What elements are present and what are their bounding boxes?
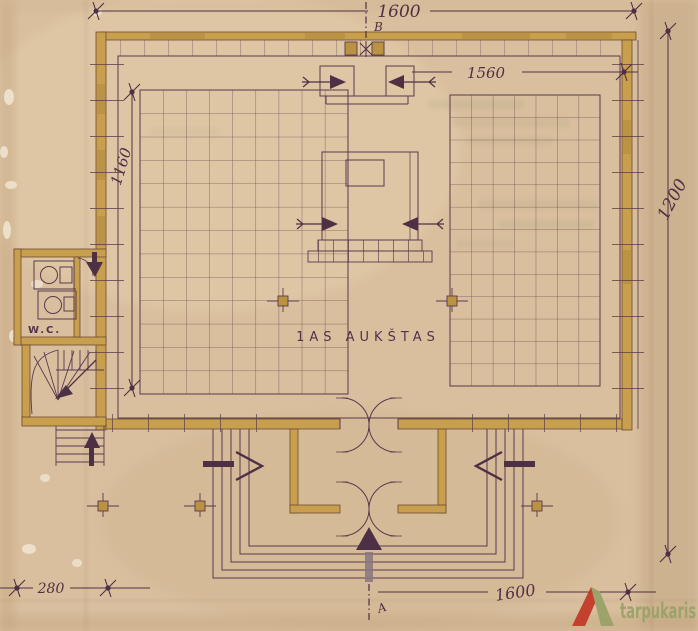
stair-wall-south	[22, 417, 106, 426]
west-window-ticks	[90, 64, 124, 410]
dim-bottom-left-label: 280	[37, 581, 65, 597]
dim-inner-label: 1560	[467, 64, 506, 82]
south-ticks-left	[112, 414, 288, 432]
east-window-ticks	[612, 64, 644, 410]
seating-grid-right	[450, 95, 600, 386]
annex-wall-west	[14, 249, 21, 345]
axis-b-label: B	[373, 20, 383, 34]
portico-wall-right	[438, 429, 446, 513]
portico-wall-left	[290, 429, 298, 513]
scanned-floorplan-page: 1600 1560 1160 1200 280 1600	[0, 0, 698, 631]
wc-label: W.C.	[28, 325, 61, 336]
south-ticks-right	[452, 414, 620, 432]
wc-partition	[74, 257, 80, 337]
stair-wall-west	[22, 345, 30, 425]
watermark-brand-text: tarpukaris	[620, 600, 696, 624]
floor-title: 1AS AUKŠTAS	[296, 329, 440, 345]
portico-wall-bottom-left	[290, 505, 340, 513]
floorplan-drawing: 1600 1560 1160 1200 280 1600	[0, 0, 698, 631]
portico-wall-bottom-right	[398, 505, 446, 513]
seating-grid-left	[140, 90, 348, 394]
dim-top-label: 1600	[377, 2, 420, 22]
